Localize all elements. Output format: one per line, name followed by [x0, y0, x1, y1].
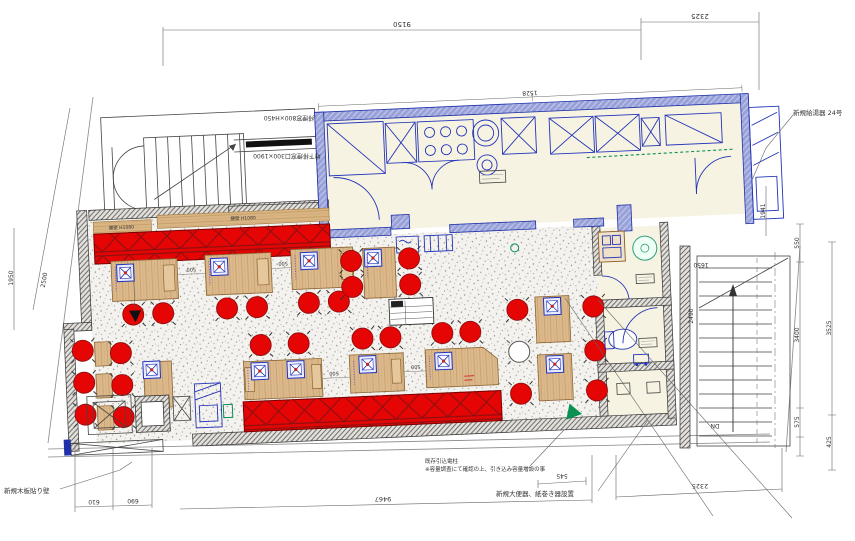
note-wood-wall: 新規木板貼り壁: [4, 486, 50, 495]
smoke-vent-window: [246, 139, 312, 148]
floor-plan-canvas: 腰壁 H1080 腰壁 H1080: [0, 0, 855, 541]
dim-right-575: 575: [794, 416, 801, 428]
note-power-pole-2: ※容量調査にて確認の上、引き込み容量増設の事: [425, 465, 546, 473]
dim-bottom-main: 9467: [375, 495, 392, 503]
dim-gap-1: 500: [186, 266, 196, 272]
dim-bottom-690: 690: [127, 497, 139, 504]
dim-right-3400: 3400: [794, 327, 801, 342]
dim-right-425: 425: [826, 436, 833, 448]
dim-right-3525: 3525: [826, 320, 833, 335]
dim-right-550: 550: [794, 237, 801, 249]
dim-gap-2: 500: [278, 260, 288, 266]
dim-left-slope: 2500: [40, 272, 50, 288]
dim-top-main: 9150: [393, 20, 411, 28]
note-underfloor-window: 地下排煙窓口300×1900: [253, 152, 321, 160]
right-staircase: DN: [680, 246, 790, 448]
dim-gap-4: 500: [411, 363, 421, 369]
dim-wc-545: 545: [556, 472, 568, 479]
dim-stair-1650: 1650: [693, 261, 708, 268]
dim-kitchen-width: 1528: [522, 89, 538, 97]
entrance-stair-block: [101, 108, 319, 215]
note-toilet: 新規大便器、紙巻き器設置: [496, 489, 575, 498]
legend-box: [389, 297, 434, 325]
dim-bottom-610: 610: [88, 498, 100, 505]
dim-left-edge: 1950: [8, 270, 15, 285]
stair-up-arrow: [729, 284, 737, 296]
dim-stair-2490: 2490: [688, 308, 695, 323]
note-power-pole-1: 既存引込電柱: [425, 457, 459, 465]
dim-right-1941: 1941: [760, 203, 767, 218]
dim-top-right: 2325: [691, 12, 709, 20]
floor-plan-svg: 腰壁 H1080 腰壁 H1080: [0, 0, 855, 541]
note-water-heater: 新規給湯器 24号: [793, 108, 843, 117]
note-smoke-window: 排煙窓800×H450: [264, 114, 315, 122]
dim-gap-3: 500: [329, 370, 339, 376]
